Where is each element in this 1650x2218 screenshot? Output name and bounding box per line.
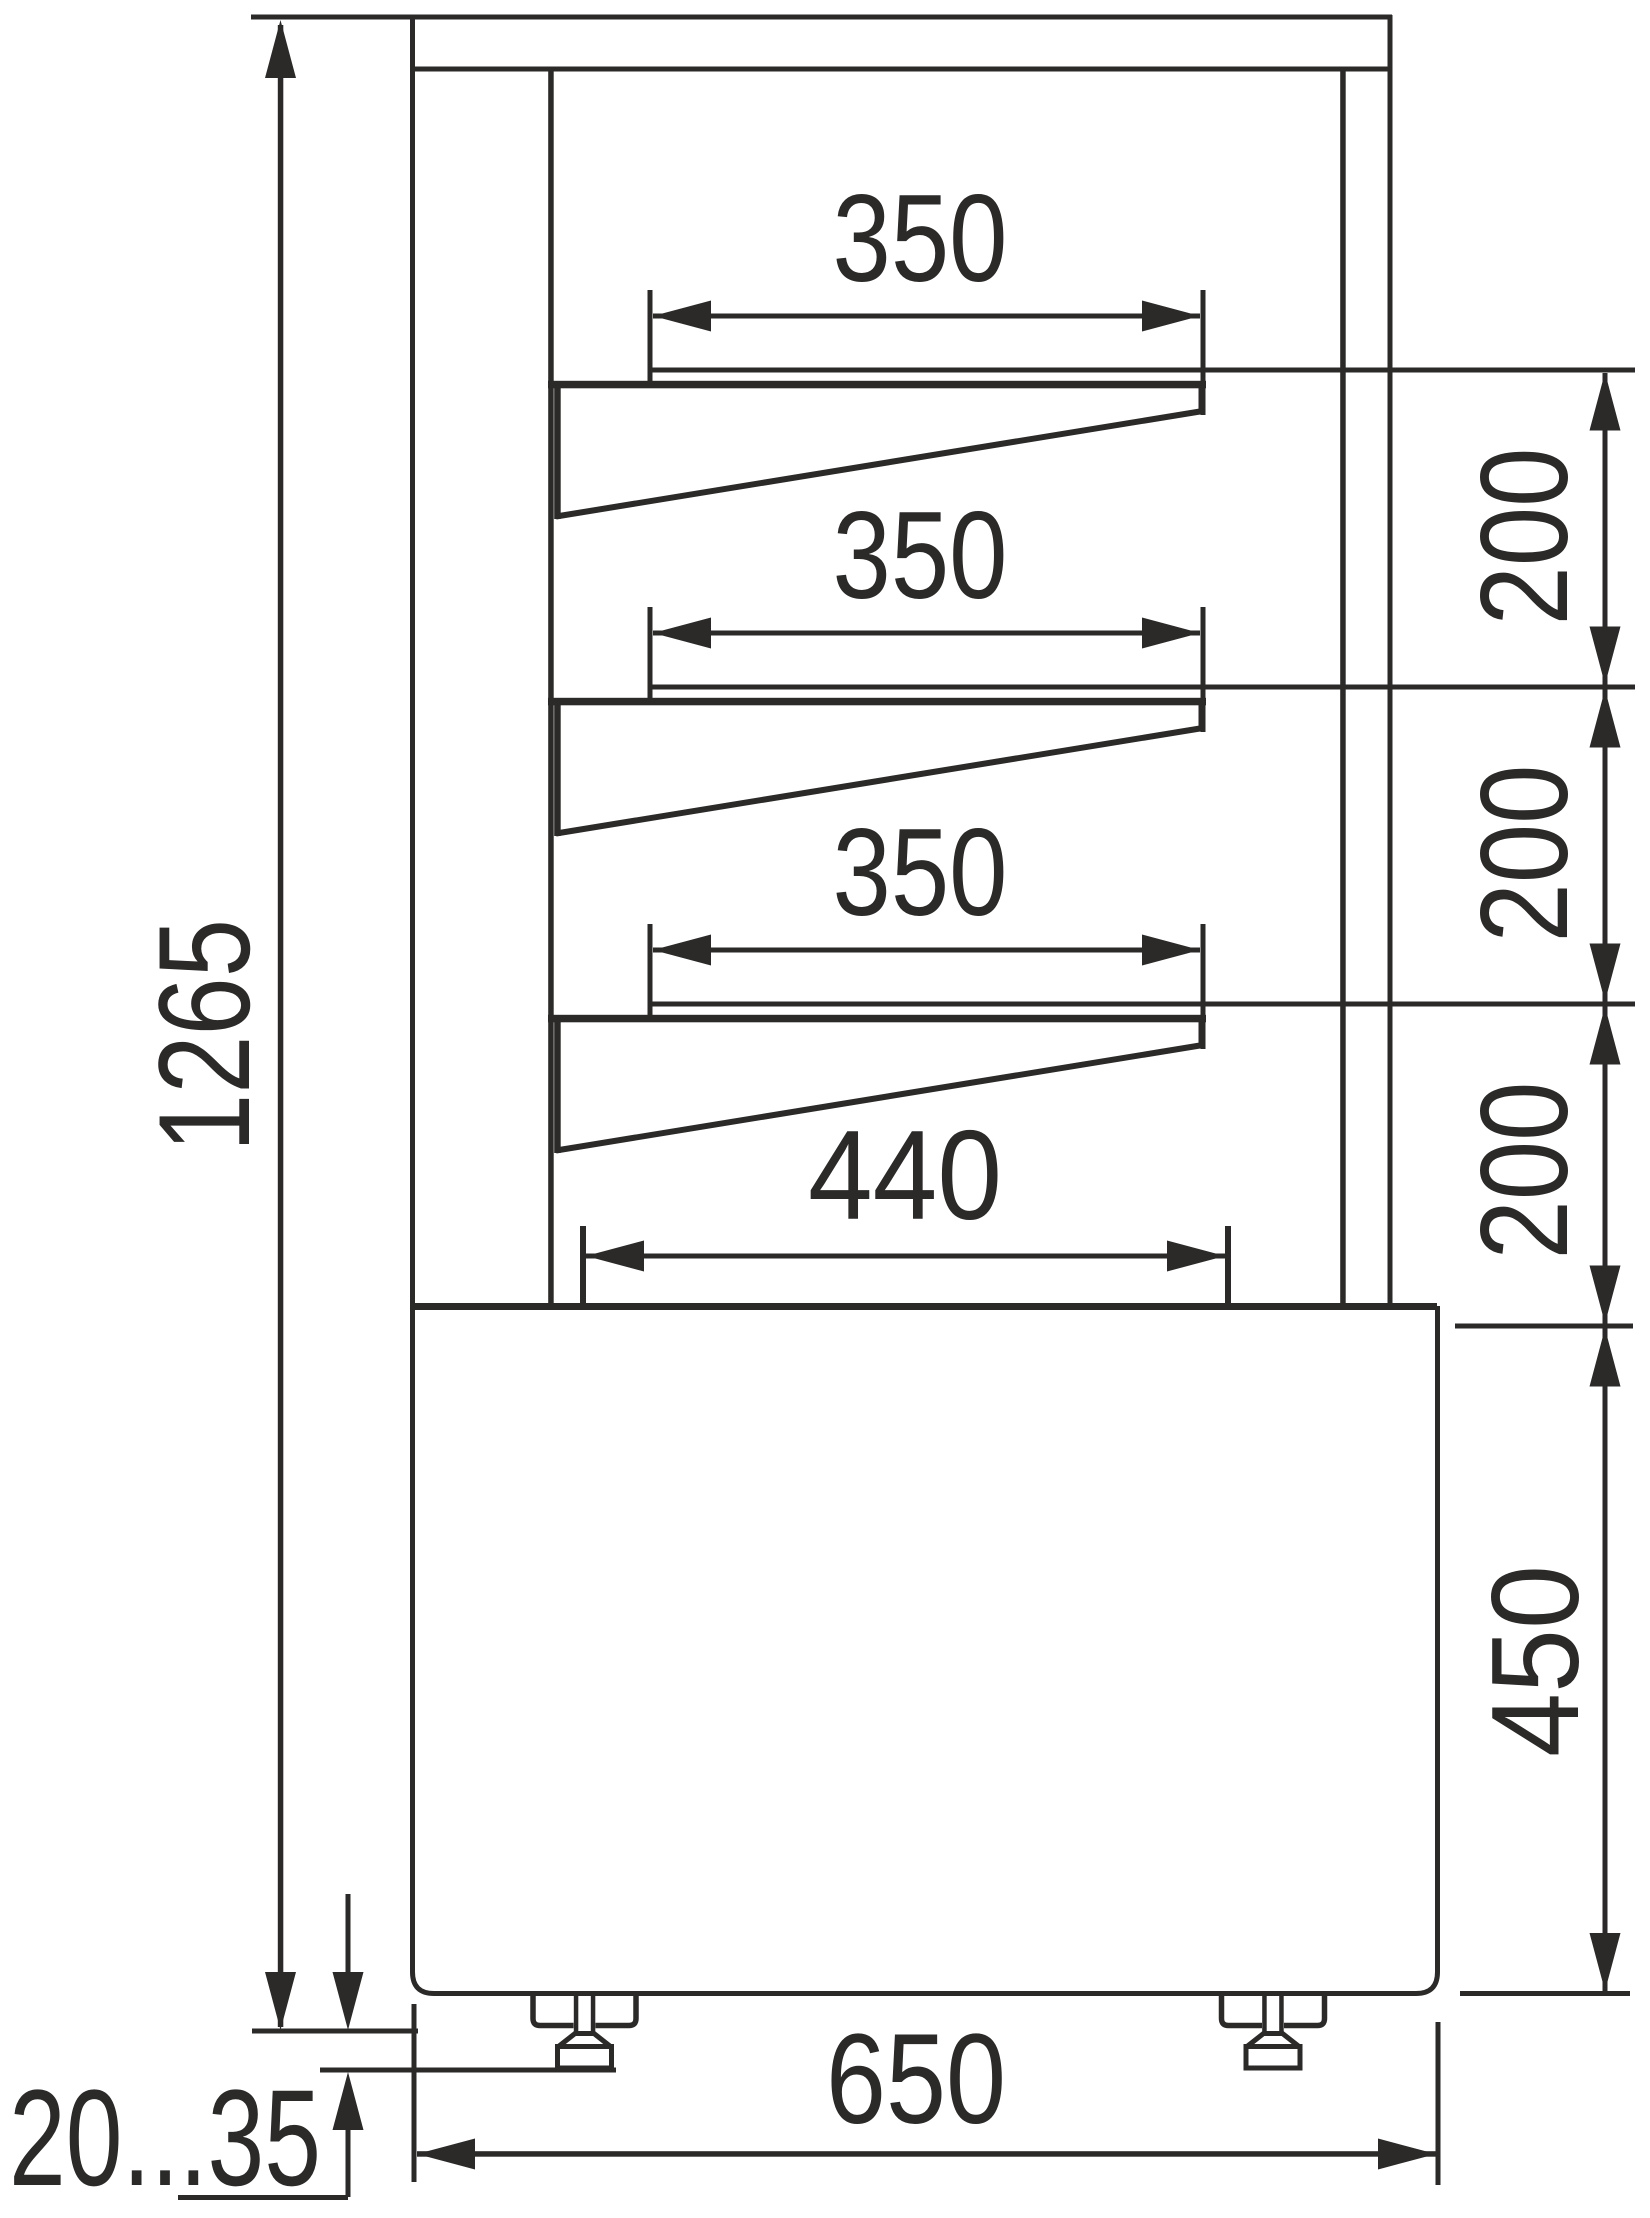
svg-text:200: 200 [1456,1082,1594,1260]
svg-text:350: 350 [833,804,1008,942]
svg-text:350: 350 [833,170,1008,308]
svg-text:350: 350 [833,487,1008,625]
svg-text:20...35: 20...35 [9,2062,321,2215]
svg-text:650: 650 [826,2008,1006,2151]
svg-text:200: 200 [1456,448,1594,626]
svg-text:450: 450 [1467,1565,1605,1757]
svg-text:440: 440 [808,1104,1002,1246]
svg-text:200: 200 [1456,765,1594,943]
svg-text:1265: 1265 [131,919,277,1152]
